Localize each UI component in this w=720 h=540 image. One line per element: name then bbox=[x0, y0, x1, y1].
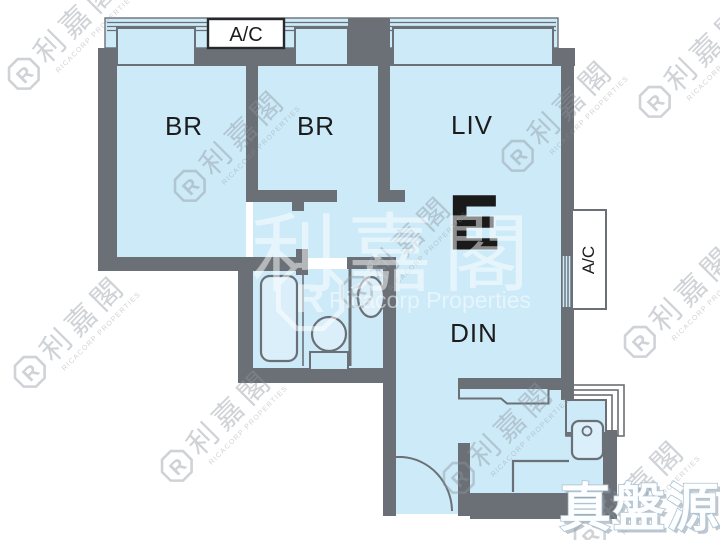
ac-top-label: A/C bbox=[229, 24, 262, 46]
bedroom1-label: BR bbox=[165, 111, 203, 141]
floorplan-svg: R 利嘉閣 RICACORP PROPERTIES bbox=[0, 0, 720, 540]
floorplan-image: R 利嘉閣 RICACORP PROPERTIES bbox=[0, 0, 720, 540]
ac-platform-top: A/C bbox=[208, 19, 284, 48]
bedroom2-label: BR bbox=[297, 111, 335, 141]
living-label: LIV bbox=[451, 110, 493, 140]
source-badge-text: 真盤源 bbox=[559, 480, 720, 538]
ac-right-label: A/C bbox=[579, 246, 598, 274]
ac-platform-right: A/C bbox=[572, 210, 606, 309]
top-window-panels bbox=[117, 28, 553, 65]
ricacorp-center-latin: Ricacorp Properties bbox=[329, 287, 531, 313]
source-badge: 真盤源 真盤源 bbox=[559, 480, 720, 540]
toilet-tank bbox=[310, 352, 348, 370]
dining-label: DIN bbox=[450, 318, 498, 348]
kitchen-sink-faucet bbox=[583, 427, 592, 436]
